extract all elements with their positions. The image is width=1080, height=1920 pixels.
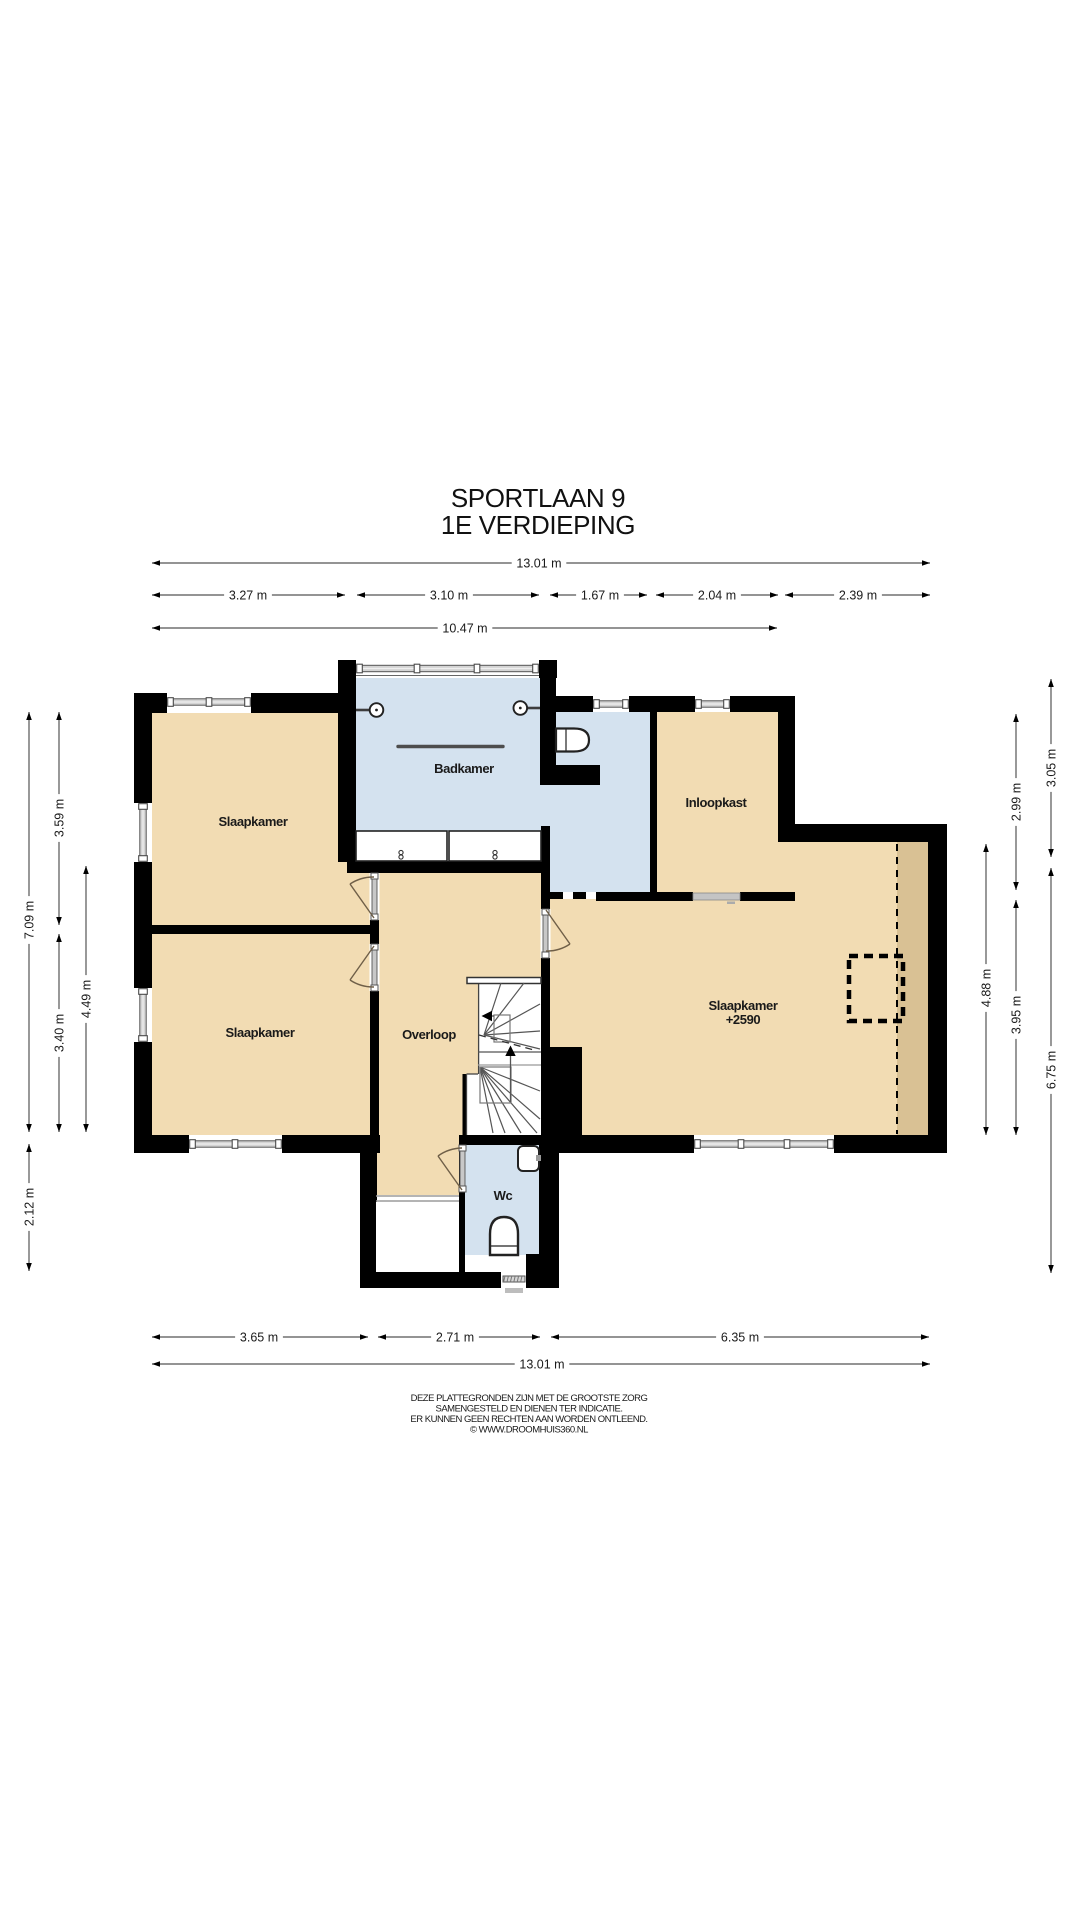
svg-text:4.49 m: 4.49 m — [79, 980, 93, 1018]
svg-text:3.05 m: 3.05 m — [1044, 749, 1058, 787]
svg-text:SPORTLAAN 9: SPORTLAAN 9 — [451, 483, 625, 513]
svg-text:Overloop: Overloop — [402, 1027, 456, 1042]
svg-text:SAMENGESTELD EN DIENEN TER IND: SAMENGESTELD EN DIENEN TER INDICATIE. — [435, 1404, 622, 1415]
svg-text:3.40 m: 3.40 m — [52, 1014, 66, 1052]
svg-text:13.01 m: 13.01 m — [519, 1357, 564, 1371]
svg-text:3.95 m: 3.95 m — [1009, 996, 1023, 1034]
svg-text:+2590: +2590 — [726, 1012, 761, 1027]
svg-text:1E VERDIEPING: 1E VERDIEPING — [441, 510, 635, 540]
svg-text:4.88 m: 4.88 m — [979, 969, 993, 1007]
svg-text:ER KUNNEN GEEN RECHTEN AAN WOR: ER KUNNEN GEEN RECHTEN AAN WORDEN ONTLEE… — [410, 1414, 647, 1425]
svg-text:6.35 m: 6.35 m — [721, 1330, 759, 1344]
svg-text:6.75 m: 6.75 m — [1044, 1051, 1058, 1089]
svg-text:13.01 m: 13.01 m — [516, 556, 561, 570]
svg-text:10.47 m: 10.47 m — [442, 621, 487, 635]
svg-text:Badkamer: Badkamer — [434, 761, 494, 776]
svg-text:2.99 m: 2.99 m — [1009, 783, 1023, 821]
svg-text:Slaapkamer: Slaapkamer — [226, 1025, 295, 1040]
svg-text:3.65 m: 3.65 m — [240, 1330, 278, 1344]
svg-text:3.10 m: 3.10 m — [430, 588, 468, 602]
svg-text:2.39 m: 2.39 m — [839, 588, 877, 602]
svg-text:Slaapkamer: Slaapkamer — [219, 814, 288, 829]
svg-text:Slaapkamer: Slaapkamer — [709, 998, 778, 1013]
svg-text:Wc: Wc — [494, 1188, 513, 1203]
svg-text:7.09 m: 7.09 m — [22, 901, 36, 939]
svg-text:DEZE PLATTEGRONDEN ZIJN MET DE: DEZE PLATTEGRONDEN ZIJN MET DE GROOTSTE … — [411, 1393, 648, 1404]
svg-text:2.12 m: 2.12 m — [22, 1188, 36, 1226]
svg-text:© WWW.DROOMHUIS360.NL: © WWW.DROOMHUIS360.NL — [470, 1424, 588, 1435]
svg-text:2.04 m: 2.04 m — [698, 588, 736, 602]
svg-text:3.59 m: 3.59 m — [52, 799, 66, 837]
svg-text:1.67 m: 1.67 m — [581, 588, 619, 602]
svg-text:2.71 m: 2.71 m — [436, 1330, 474, 1344]
svg-text:Inloopkast: Inloopkast — [685, 795, 747, 810]
svg-text:3.27 m: 3.27 m — [229, 588, 267, 602]
